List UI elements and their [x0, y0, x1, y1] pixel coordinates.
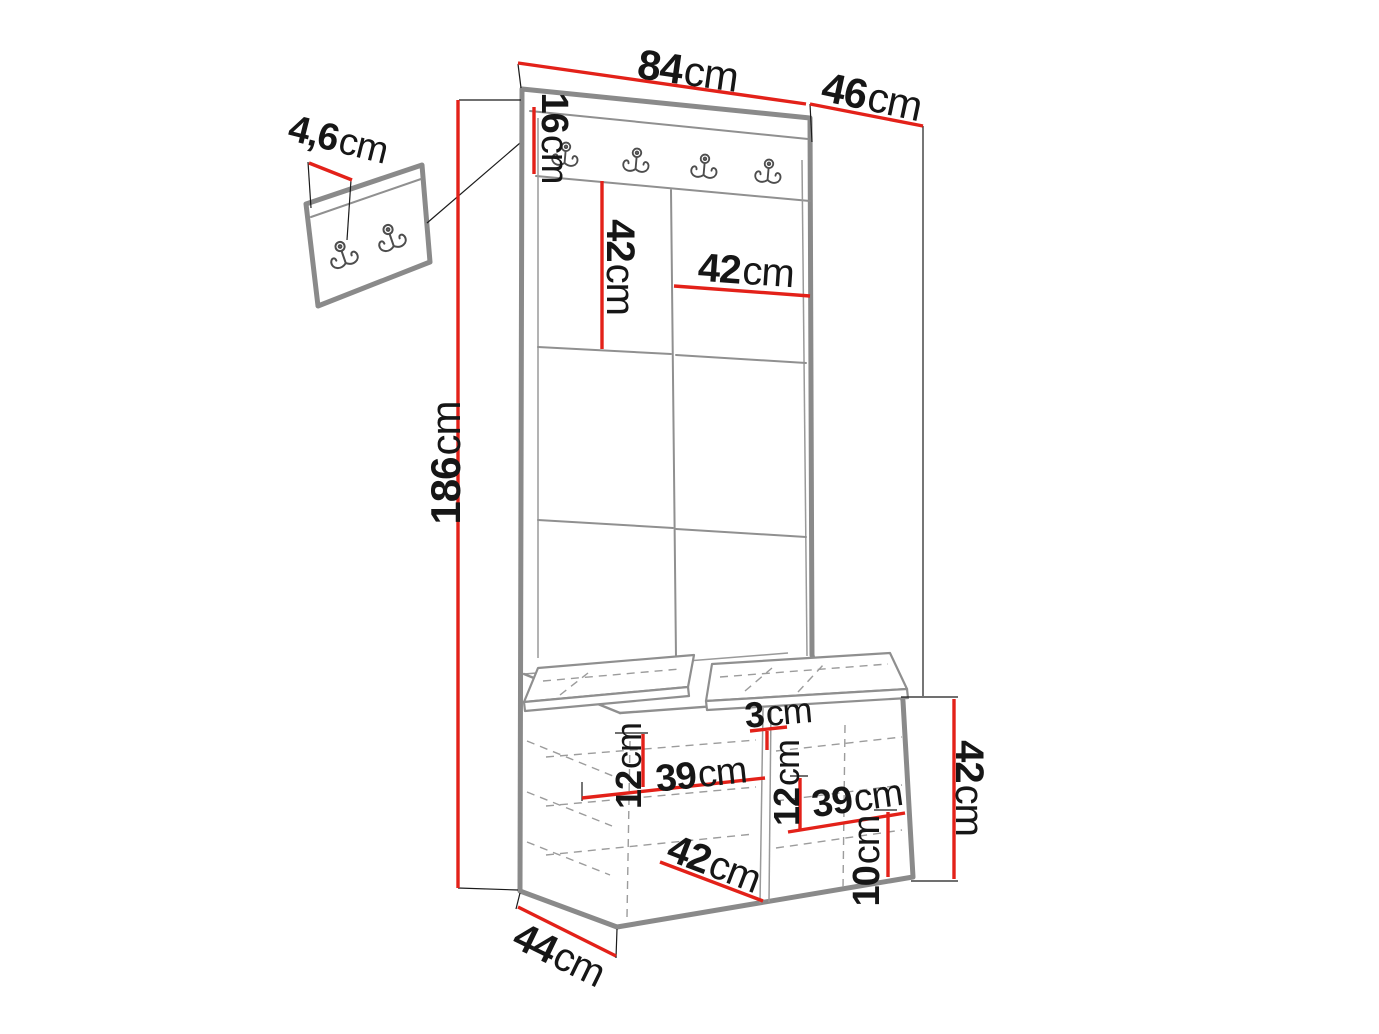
wall-panel-detail — [306, 165, 430, 306]
dim-label-shelf-offset-left: 12cm — [608, 723, 649, 809]
dim-label-bench-height: 42cm — [947, 740, 991, 836]
dim-label-panel-tile-height: 42cm — [598, 219, 642, 315]
dim-label-width-top: 84cm — [635, 40, 741, 101]
detail-pointer-line — [427, 137, 527, 223]
dim-label-divider-thickness: 3cm — [743, 689, 813, 736]
dim-line-wall-panel-size — [309, 163, 352, 180]
diagram-canvas: 84cm 46cm 16cm 42cm 42cm 186cm 4,6cm 3cm… — [0, 0, 1379, 1034]
dim-label-depth-top: 46cm — [818, 63, 926, 130]
wall-panel-outline — [306, 165, 430, 306]
dim-label-shelf-offset-right: 12cm — [766, 740, 807, 826]
dim-label-total-height: 186cm — [422, 401, 469, 524]
dim-label-panel-tile-width: 42cm — [697, 246, 796, 297]
dim-label-wall-panel-size: 4,6cm — [284, 107, 392, 172]
dim-label-hook-rail-height: 16cm — [533, 93, 575, 184]
dim-label-bottom-gap: 10cm — [846, 816, 888, 907]
